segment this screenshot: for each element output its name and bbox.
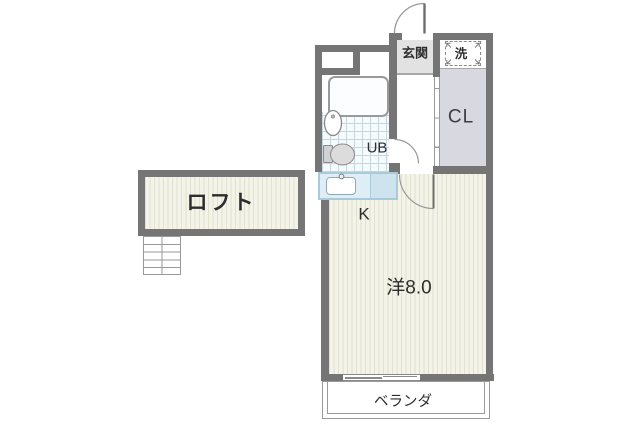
wall xyxy=(486,33,493,381)
wall xyxy=(433,33,440,77)
window-sash-left xyxy=(345,377,382,378)
window-sash-right xyxy=(383,376,417,377)
kitchen-sink-icon xyxy=(326,177,356,195)
loft-ladder-icon xyxy=(143,236,181,275)
kitchen-counter xyxy=(318,172,398,200)
floor-plan: ロフト 玄関 洗 CL UB K 洋8.0 ベランダ xyxy=(0,0,640,426)
bathtub-icon xyxy=(328,76,389,117)
wall xyxy=(389,33,397,139)
loft-room-label: ロフト xyxy=(187,193,256,214)
closet-label: CL xyxy=(448,108,474,127)
entrance-label: 玄関 xyxy=(402,47,428,60)
kitchen-label: K xyxy=(358,206,369,223)
western-room-label: 洋8.0 xyxy=(386,279,431,298)
wall xyxy=(321,199,329,381)
bath-door-opening xyxy=(389,139,398,165)
closet-door-icon xyxy=(434,77,440,166)
unit-bath-label: UB xyxy=(367,141,388,156)
window-icon xyxy=(343,374,420,381)
entrance-door-arc-icon xyxy=(395,4,425,34)
wall xyxy=(433,33,493,40)
wall xyxy=(433,166,493,174)
wall xyxy=(321,374,343,381)
kitchen-counter-right xyxy=(370,174,396,198)
laundry-label: 洗 xyxy=(455,47,468,60)
entrance-step-line xyxy=(397,73,433,75)
pipe-space-box xyxy=(315,45,360,75)
bath-door-arc-icon xyxy=(395,140,419,164)
western-room xyxy=(329,174,486,374)
wall xyxy=(420,374,494,381)
closet-divider-line xyxy=(440,68,486,69)
veranda-label: ベランダ xyxy=(374,395,432,410)
